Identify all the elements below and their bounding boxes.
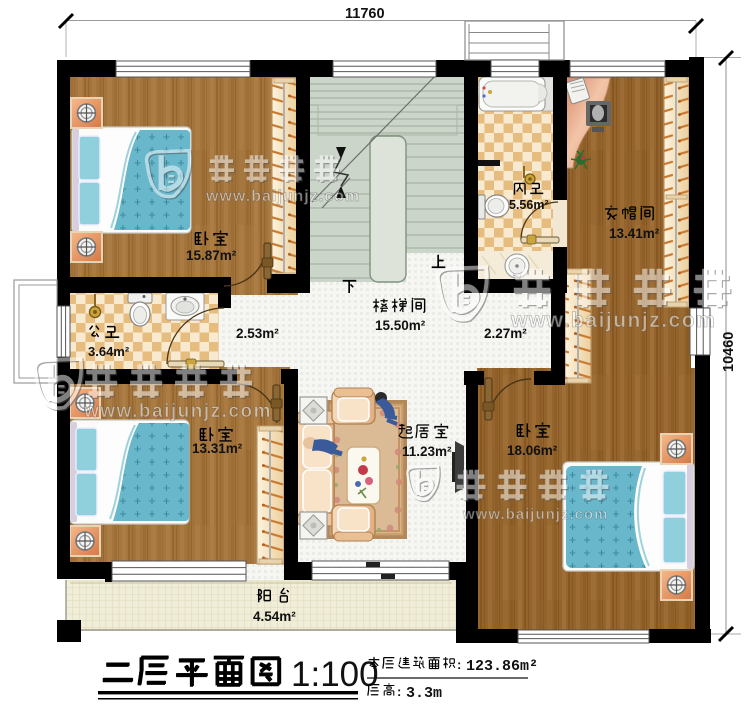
svg-text:www.baijunjz.com: www.baijunjz.com xyxy=(462,506,608,523)
svg-text:www.baijunjz.com: www.baijunjz.com xyxy=(205,188,360,205)
svg-text::: : xyxy=(397,684,401,699)
svg-text:2.53m²: 2.53m² xyxy=(236,326,279,341)
svg-text:123.86m²: 123.86m² xyxy=(466,658,538,675)
svg-text::: : xyxy=(457,657,461,672)
svg-text:3.3m: 3.3m xyxy=(406,685,442,702)
svg-text:13.41m²: 13.41m² xyxy=(609,226,660,241)
svg-text:2.27m²: 2.27m² xyxy=(484,326,527,341)
svg-text:1:100: 1:100 xyxy=(291,655,379,694)
svg-text:13.31m²: 13.31m² xyxy=(192,441,243,456)
svg-text:11760: 11760 xyxy=(345,6,385,22)
svg-text:10460: 10460 xyxy=(721,332,737,372)
svg-text:3.64m²: 3.64m² xyxy=(88,344,130,359)
svg-text:5.56m²: 5.56m² xyxy=(509,198,549,212)
svg-text:4.54m²: 4.54m² xyxy=(253,609,296,624)
svg-text:18.06m²: 18.06m² xyxy=(507,443,558,458)
svg-text:11.23m²: 11.23m² xyxy=(402,444,452,459)
svg-text:15.87m²: 15.87m² xyxy=(186,248,237,263)
svg-text:www.baijunjz.com: www.baijunjz.com xyxy=(83,401,272,422)
svg-text:www.baijunjz.com: www.baijunjz.com xyxy=(510,309,716,332)
svg-text:15.50m²: 15.50m² xyxy=(375,318,426,333)
